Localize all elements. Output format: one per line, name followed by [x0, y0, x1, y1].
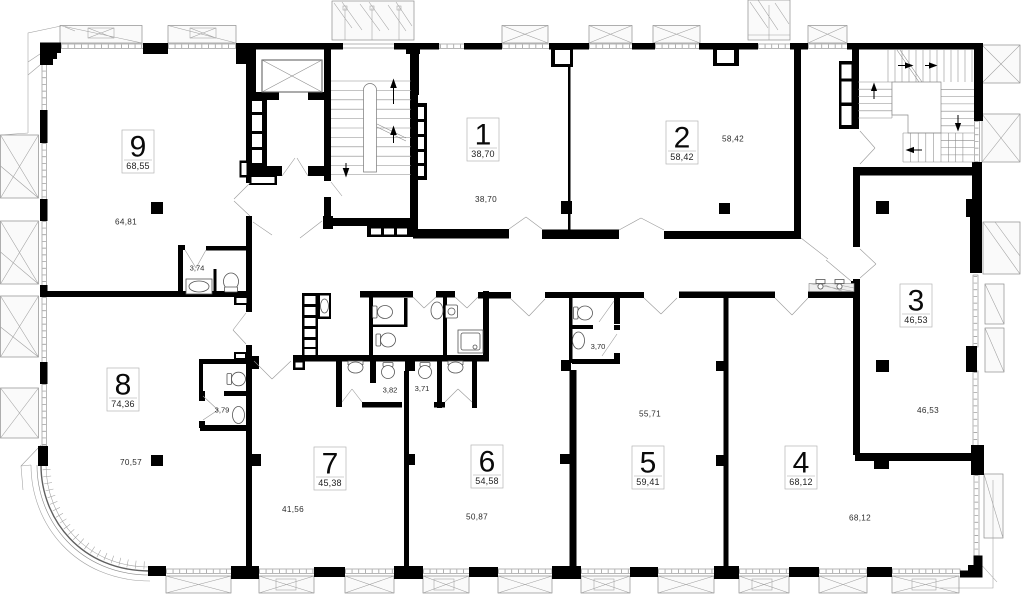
svg-text:3,79: 3,79 [215, 406, 230, 415]
svg-text:58,42: 58,42 [670, 152, 694, 162]
svg-text:64,81: 64,81 [115, 218, 137, 227]
svg-text:3,70: 3,70 [591, 342, 606, 351]
svg-text:68,12: 68,12 [789, 477, 813, 487]
svg-text:70,57: 70,57 [120, 458, 142, 467]
svg-text:2: 2 [674, 122, 691, 155]
svg-text:3,82: 3,82 [383, 386, 398, 395]
svg-text:8: 8 [115, 369, 132, 402]
svg-text:9: 9 [130, 131, 147, 164]
svg-text:6: 6 [479, 446, 496, 479]
svg-text:3,74: 3,74 [190, 264, 205, 273]
svg-text:68,55: 68,55 [126, 161, 150, 171]
svg-text:5: 5 [640, 447, 657, 480]
svg-text:1: 1 [475, 119, 492, 152]
svg-text:50,87: 50,87 [466, 513, 488, 522]
svg-text:59,41: 59,41 [636, 477, 660, 487]
svg-text:46,53: 46,53 [904, 315, 928, 325]
svg-text:45,38: 45,38 [318, 478, 342, 488]
svg-text:3: 3 [908, 285, 925, 318]
svg-text:68,12: 68,12 [849, 514, 871, 523]
svg-text:41,56: 41,56 [282, 505, 304, 514]
svg-text:4: 4 [793, 447, 810, 480]
svg-text:58,42: 58,42 [722, 135, 744, 144]
svg-text:38,70: 38,70 [475, 195, 497, 204]
svg-text:38,70: 38,70 [471, 149, 495, 159]
svg-text:74,36: 74,36 [111, 399, 135, 409]
svg-text:55,71: 55,71 [639, 410, 661, 419]
svg-text:3,71: 3,71 [415, 384, 430, 393]
svg-text:46,53: 46,53 [917, 406, 939, 415]
svg-text:54,58: 54,58 [475, 476, 499, 486]
svg-text:7: 7 [322, 448, 339, 481]
